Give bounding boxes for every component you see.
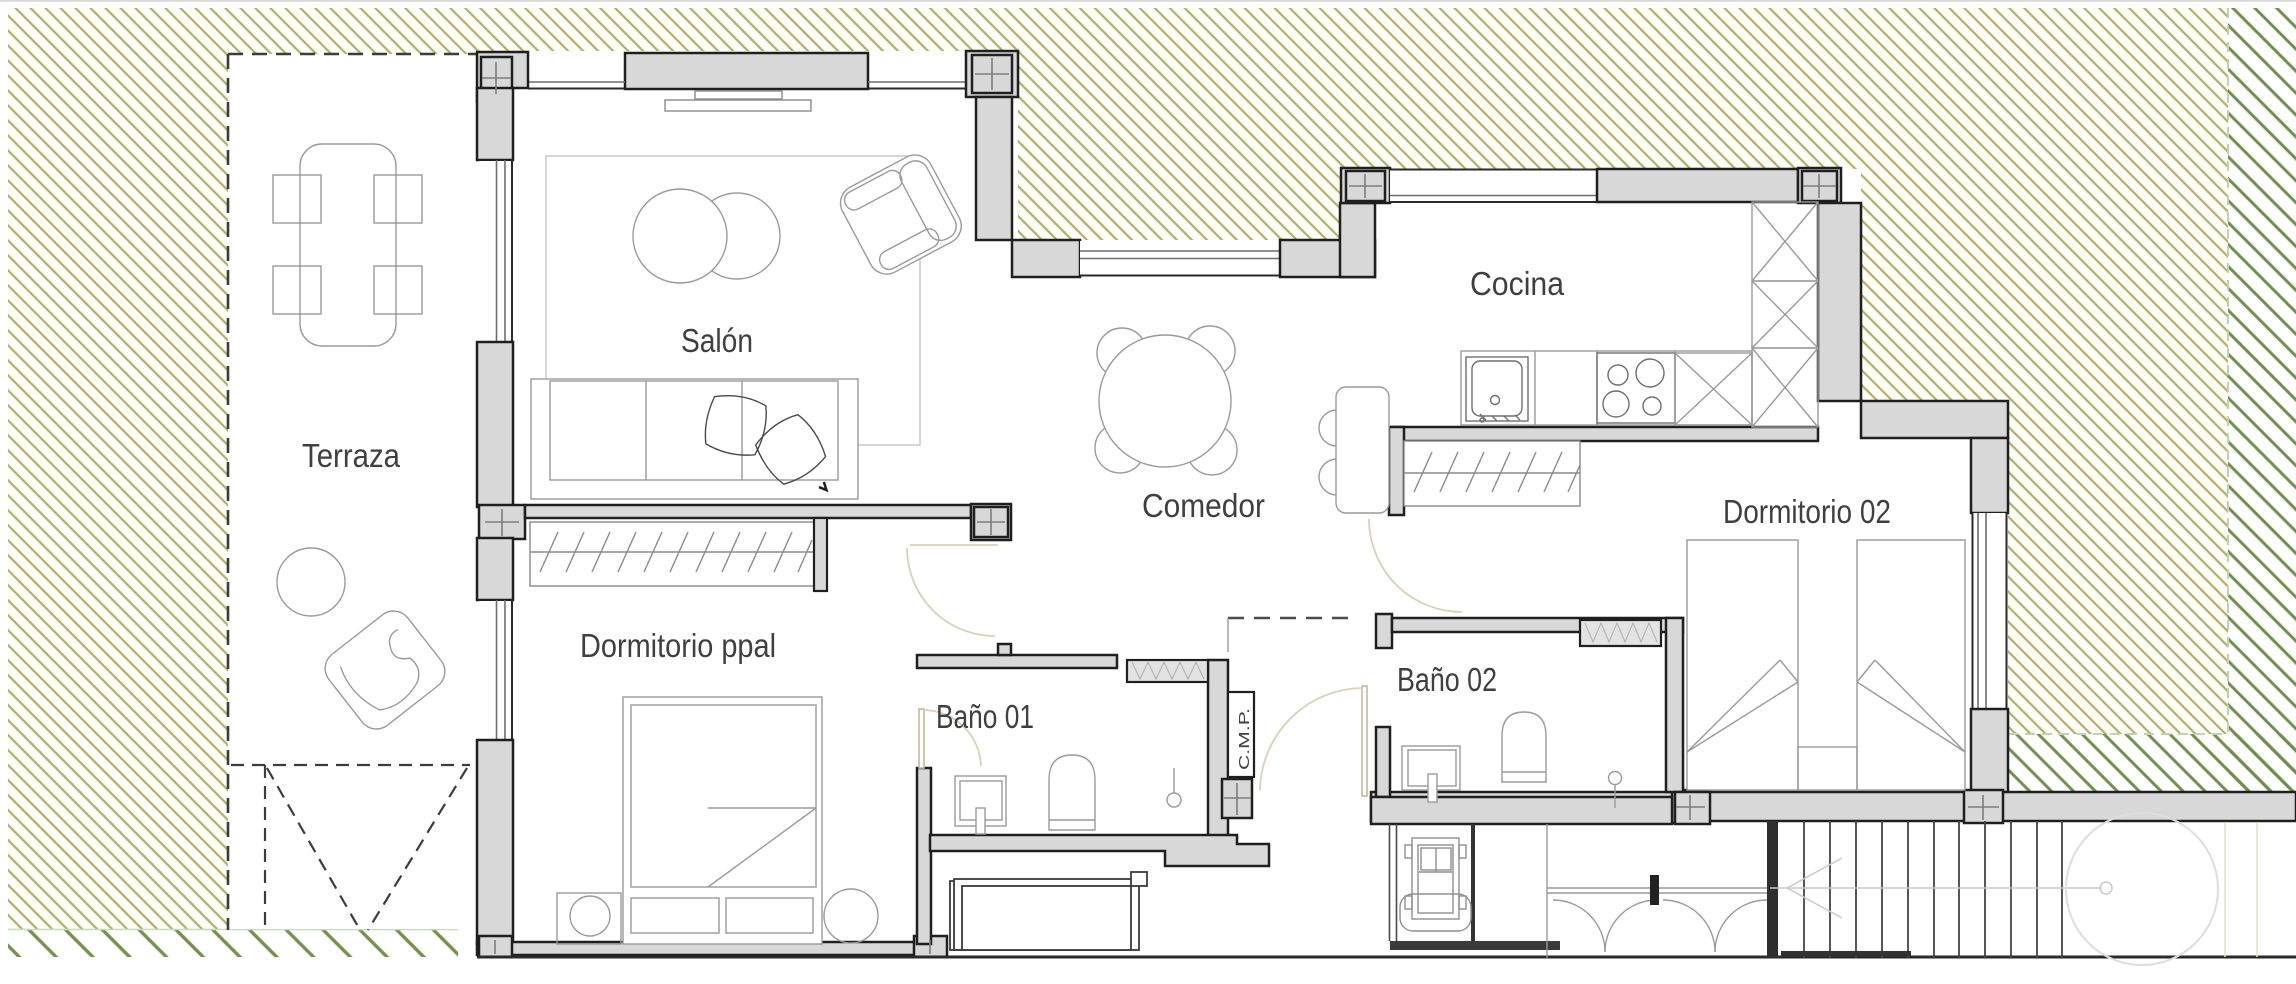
svg-text:Dormitorio 02: Dormitorio 02 [1723,493,1891,530]
svg-text:Cocina: Cocina [1470,265,1565,302]
svg-text:Comedor: Comedor [1142,487,1265,524]
svg-text:Baño 02: Baño 02 [1397,661,1497,698]
svg-text:Dormitorio ppal: Dormitorio ppal [580,627,776,664]
svg-text:C.M.P.: C.M.P. [1237,708,1253,770]
svg-text:Terraza: Terraza [302,437,401,474]
svg-text:Baño 01: Baño 01 [936,698,1034,735]
svg-text:Salón: Salón [681,322,753,359]
